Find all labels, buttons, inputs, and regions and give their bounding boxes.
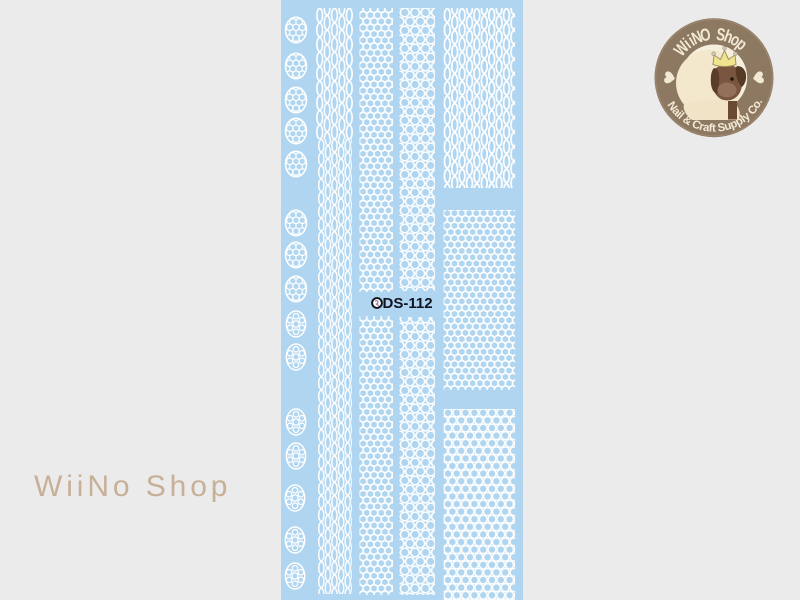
svg-text:WiiNo Shop: WiiNo Shop [34,470,231,503]
svg-text:DS-112: DS-112 [383,295,433,312]
